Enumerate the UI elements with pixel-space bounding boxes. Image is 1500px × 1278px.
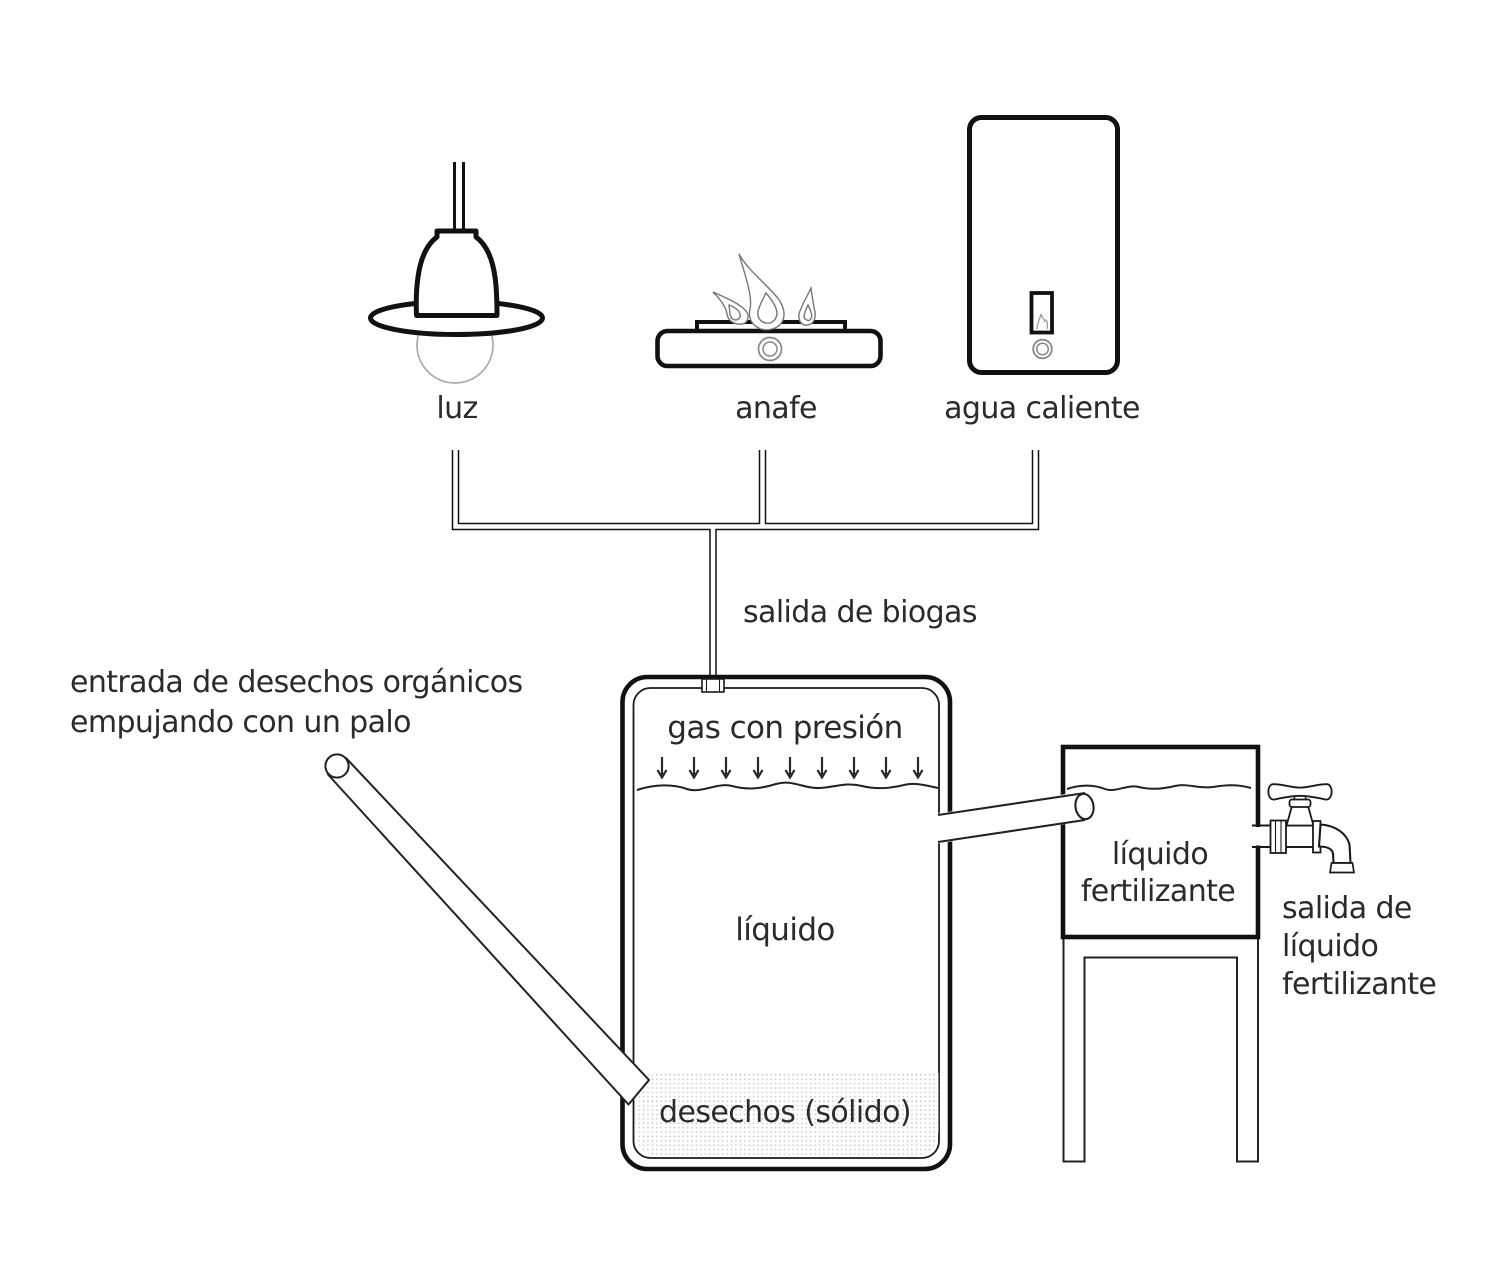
inlet-pipe-mouth bbox=[325, 754, 348, 777]
fertilizer-tank: líquido fertilizante bbox=[1063, 747, 1258, 937]
biogas-diagram-page: luz anafe agua caliente salida de biogas… bbox=[0, 0, 1500, 1278]
stove-knob-inner bbox=[763, 342, 777, 356]
faucet-flange bbox=[1271, 821, 1287, 854]
faucet-spout-tip bbox=[1330, 863, 1354, 873]
biogas-outlet-label: salida de biogas bbox=[743, 595, 977, 630]
fertilizer-tank-label-line2: fertilizante bbox=[1081, 874, 1235, 909]
fertilizer-outlet-label-line3: fertilizante bbox=[1282, 967, 1436, 1002]
faucet-bonnet bbox=[1290, 800, 1311, 808]
inlet-label-line2: empujando con un palo bbox=[70, 705, 411, 740]
water-heater-label: agua caliente bbox=[944, 391, 1140, 426]
pipe-coupling bbox=[702, 679, 724, 692]
fertilizer-outlet-label-line1: salida de bbox=[1282, 891, 1412, 926]
faucet-neck bbox=[1287, 806, 1314, 826]
stove-label: anafe bbox=[735, 391, 817, 426]
lamp-shade bbox=[416, 231, 497, 316]
heater-window bbox=[1032, 293, 1053, 333]
lamp-label: luz bbox=[436, 391, 477, 426]
fertilizer-tank-label-line1: líquido bbox=[1112, 837, 1208, 872]
water-heater-icon bbox=[970, 118, 1118, 373]
biogas-diagram: luz anafe agua caliente salida de biogas… bbox=[0, 0, 1500, 1278]
gas-zone-label: gas con presión bbox=[667, 710, 902, 746]
solids-zone-label: desechos (sólido) bbox=[659, 1095, 911, 1130]
digester-tank: gas con presión líquido desechos (sólido… bbox=[623, 677, 951, 1169]
liquid-zone-label: líquido bbox=[735, 912, 835, 948]
heater-button-inner bbox=[1037, 343, 1049, 355]
inlet-label-line1: entrada de desechos orgánicos bbox=[70, 665, 523, 700]
fertilizer-outlet-label-line2: líquido bbox=[1282, 929, 1378, 964]
